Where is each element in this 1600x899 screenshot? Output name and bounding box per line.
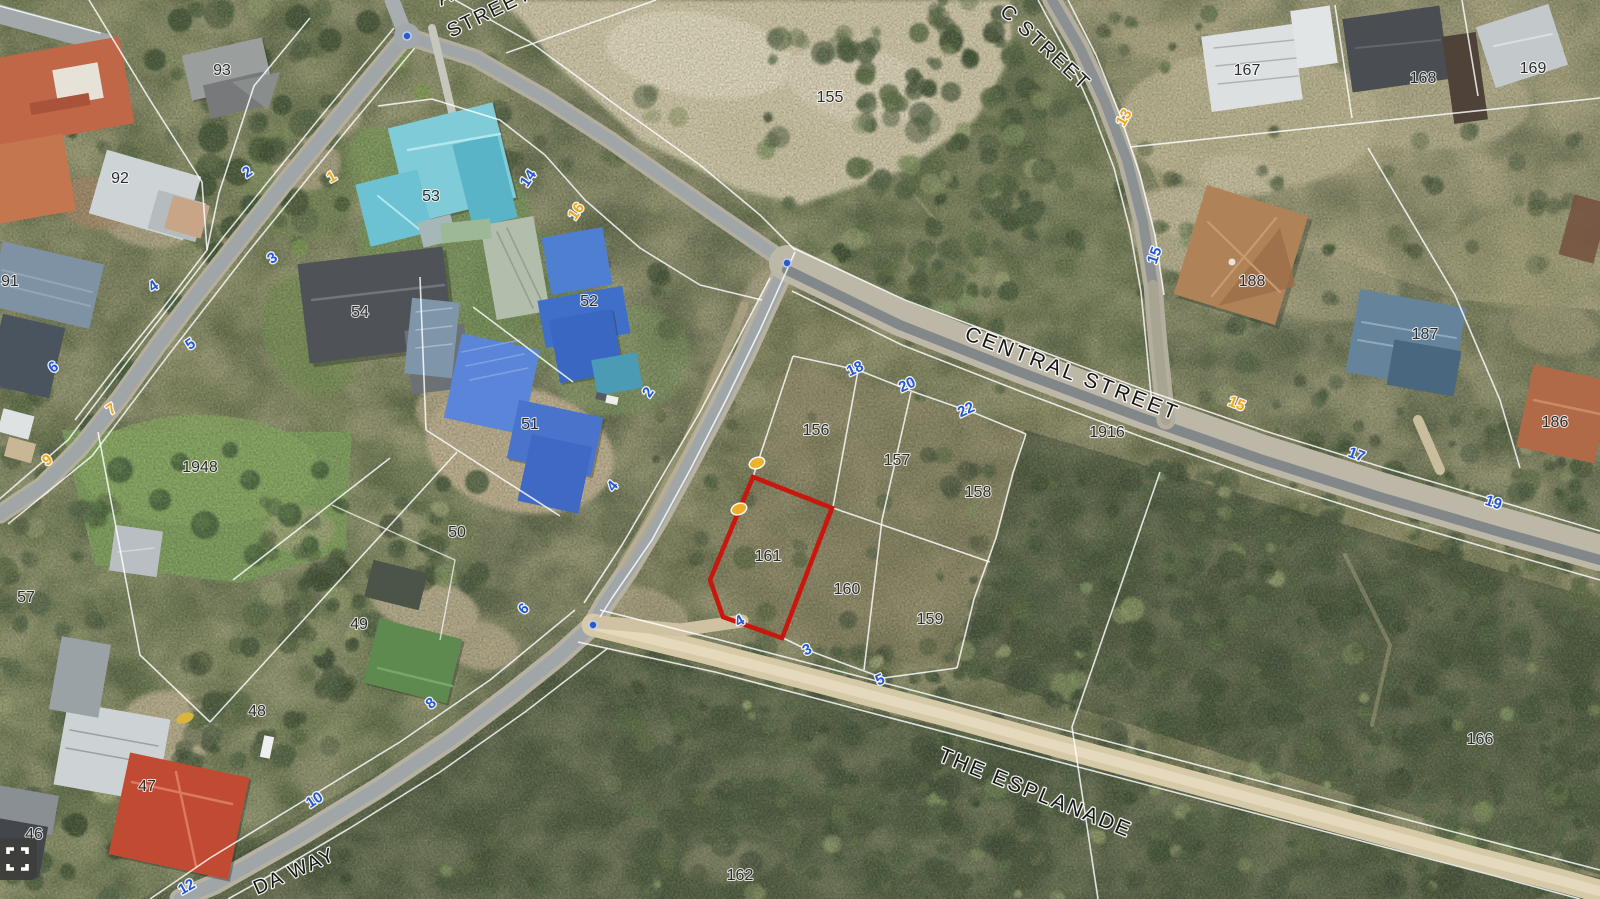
svg-text:50: 50 xyxy=(448,524,466,541)
svg-text:186: 186 xyxy=(1542,414,1569,431)
svg-text:155: 155 xyxy=(817,89,844,106)
svg-text:51: 51 xyxy=(521,416,539,433)
svg-text:92: 92 xyxy=(111,170,129,187)
svg-text:166: 166 xyxy=(1467,731,1494,748)
svg-text:1916: 1916 xyxy=(1089,424,1125,441)
svg-text:168: 168 xyxy=(1410,70,1437,87)
svg-text:161: 161 xyxy=(755,548,782,565)
svg-text:54: 54 xyxy=(351,304,369,321)
svg-text:53: 53 xyxy=(422,188,440,205)
svg-text:169: 169 xyxy=(1520,60,1547,77)
svg-text:162: 162 xyxy=(727,867,754,884)
svg-text:1948: 1948 xyxy=(182,459,218,476)
svg-text:93: 93 xyxy=(213,62,231,79)
svg-text:57: 57 xyxy=(17,589,35,606)
svg-text:91: 91 xyxy=(1,273,19,290)
svg-text:48: 48 xyxy=(248,703,266,720)
svg-text:52: 52 xyxy=(580,293,598,310)
svg-text:158: 158 xyxy=(965,484,992,501)
svg-text:160: 160 xyxy=(834,581,861,598)
svg-text:157: 157 xyxy=(884,452,911,469)
svg-text:156: 156 xyxy=(803,422,830,439)
svg-text:47: 47 xyxy=(138,778,156,795)
svg-text:49: 49 xyxy=(350,616,368,633)
svg-text:167: 167 xyxy=(1234,62,1261,79)
svg-text:188: 188 xyxy=(1239,273,1266,290)
svg-text:187: 187 xyxy=(1412,326,1439,343)
svg-text:159: 159 xyxy=(917,611,944,628)
